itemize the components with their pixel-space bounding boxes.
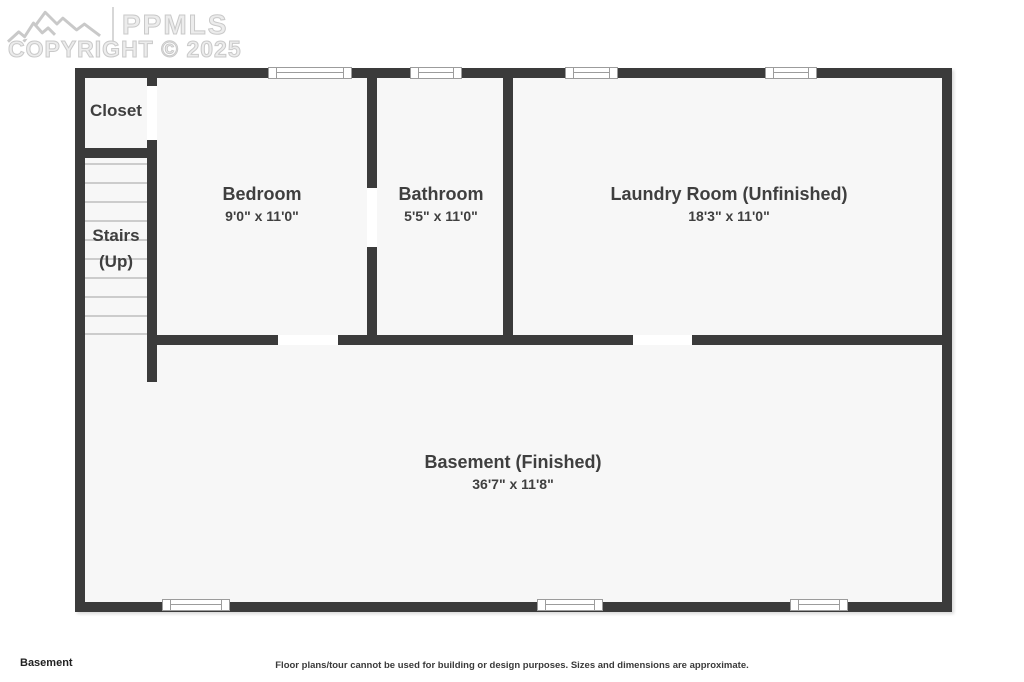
bedroom-bathroom-wall-top: [367, 78, 377, 188]
window-icon: [410, 67, 462, 79]
laundry-room-name: Laundry Room (Unfinished): [611, 184, 848, 206]
stair-step: [85, 296, 147, 298]
bedroom-door-opening: [278, 335, 338, 345]
window-icon: [162, 599, 230, 611]
stair-step: [85, 277, 147, 279]
middle-wall-left: [157, 335, 278, 345]
laundry-room-label: Laundry Room (Unfinished) 18'3" x 11'0": [611, 184, 848, 225]
bedroom-name: Bedroom: [222, 184, 301, 206]
bathroom-laundry-wall: [503, 78, 513, 345]
stair-step: [85, 182, 147, 184]
closet-bottom-wall: [85, 148, 157, 158]
closet-right-wall-top: [147, 78, 157, 86]
stairs-name-line1: Stairs: [92, 223, 139, 249]
bathroom-name: Bathroom: [399, 184, 484, 206]
stair-step: [85, 220, 147, 222]
basement-dims: 36'7" x 11'8": [424, 475, 601, 493]
stair-step: [85, 333, 147, 335]
bathroom-dims: 5'5" x 11'0": [399, 207, 484, 225]
stair-step: [85, 315, 147, 317]
stairs-right-wall: [147, 158, 157, 382]
window-icon: [790, 599, 848, 611]
bedroom-dims: 9'0" x 11'0": [222, 207, 301, 225]
closet-label: Closet: [90, 101, 142, 121]
floor-plan: Closet Stairs (Up) Bedroom 9'0" x 11'0" …: [0, 0, 1024, 682]
stair-step: [85, 201, 147, 203]
bathroom-label: Bathroom 5'5" x 11'0": [399, 184, 484, 225]
closet-door-opening: [147, 86, 157, 140]
stair-step: [85, 163, 147, 165]
laundry-room-dims: 18'3" x 11'0": [611, 207, 848, 225]
window-icon: [765, 67, 817, 79]
window-icon: [537, 599, 603, 611]
middle-wall-center: [338, 335, 633, 345]
middle-wall-right: [692, 335, 943, 345]
stairs-name-line2: (Up): [92, 249, 139, 275]
floor-plan-page: PPMLS COPYRIGHT © 2025: [0, 0, 1024, 682]
disclaimer-text: Floor plans/tour cannot be used for buil…: [0, 660, 1024, 671]
laundry-door-opening: [633, 335, 692, 345]
bathroom-door-opening: [367, 188, 377, 247]
window-icon: [565, 67, 618, 79]
stairs-label: Stairs (Up): [92, 223, 139, 276]
bedroom-bathroom-wall-bottom: [367, 247, 377, 345]
closet-name: Closet: [90, 101, 142, 121]
bedroom-label: Bedroom 9'0" x 11'0": [222, 184, 301, 225]
basement-name: Basement (Finished): [424, 452, 601, 474]
basement-label: Basement (Finished) 36'7" x 11'8": [424, 452, 601, 493]
window-icon: [268, 67, 352, 79]
